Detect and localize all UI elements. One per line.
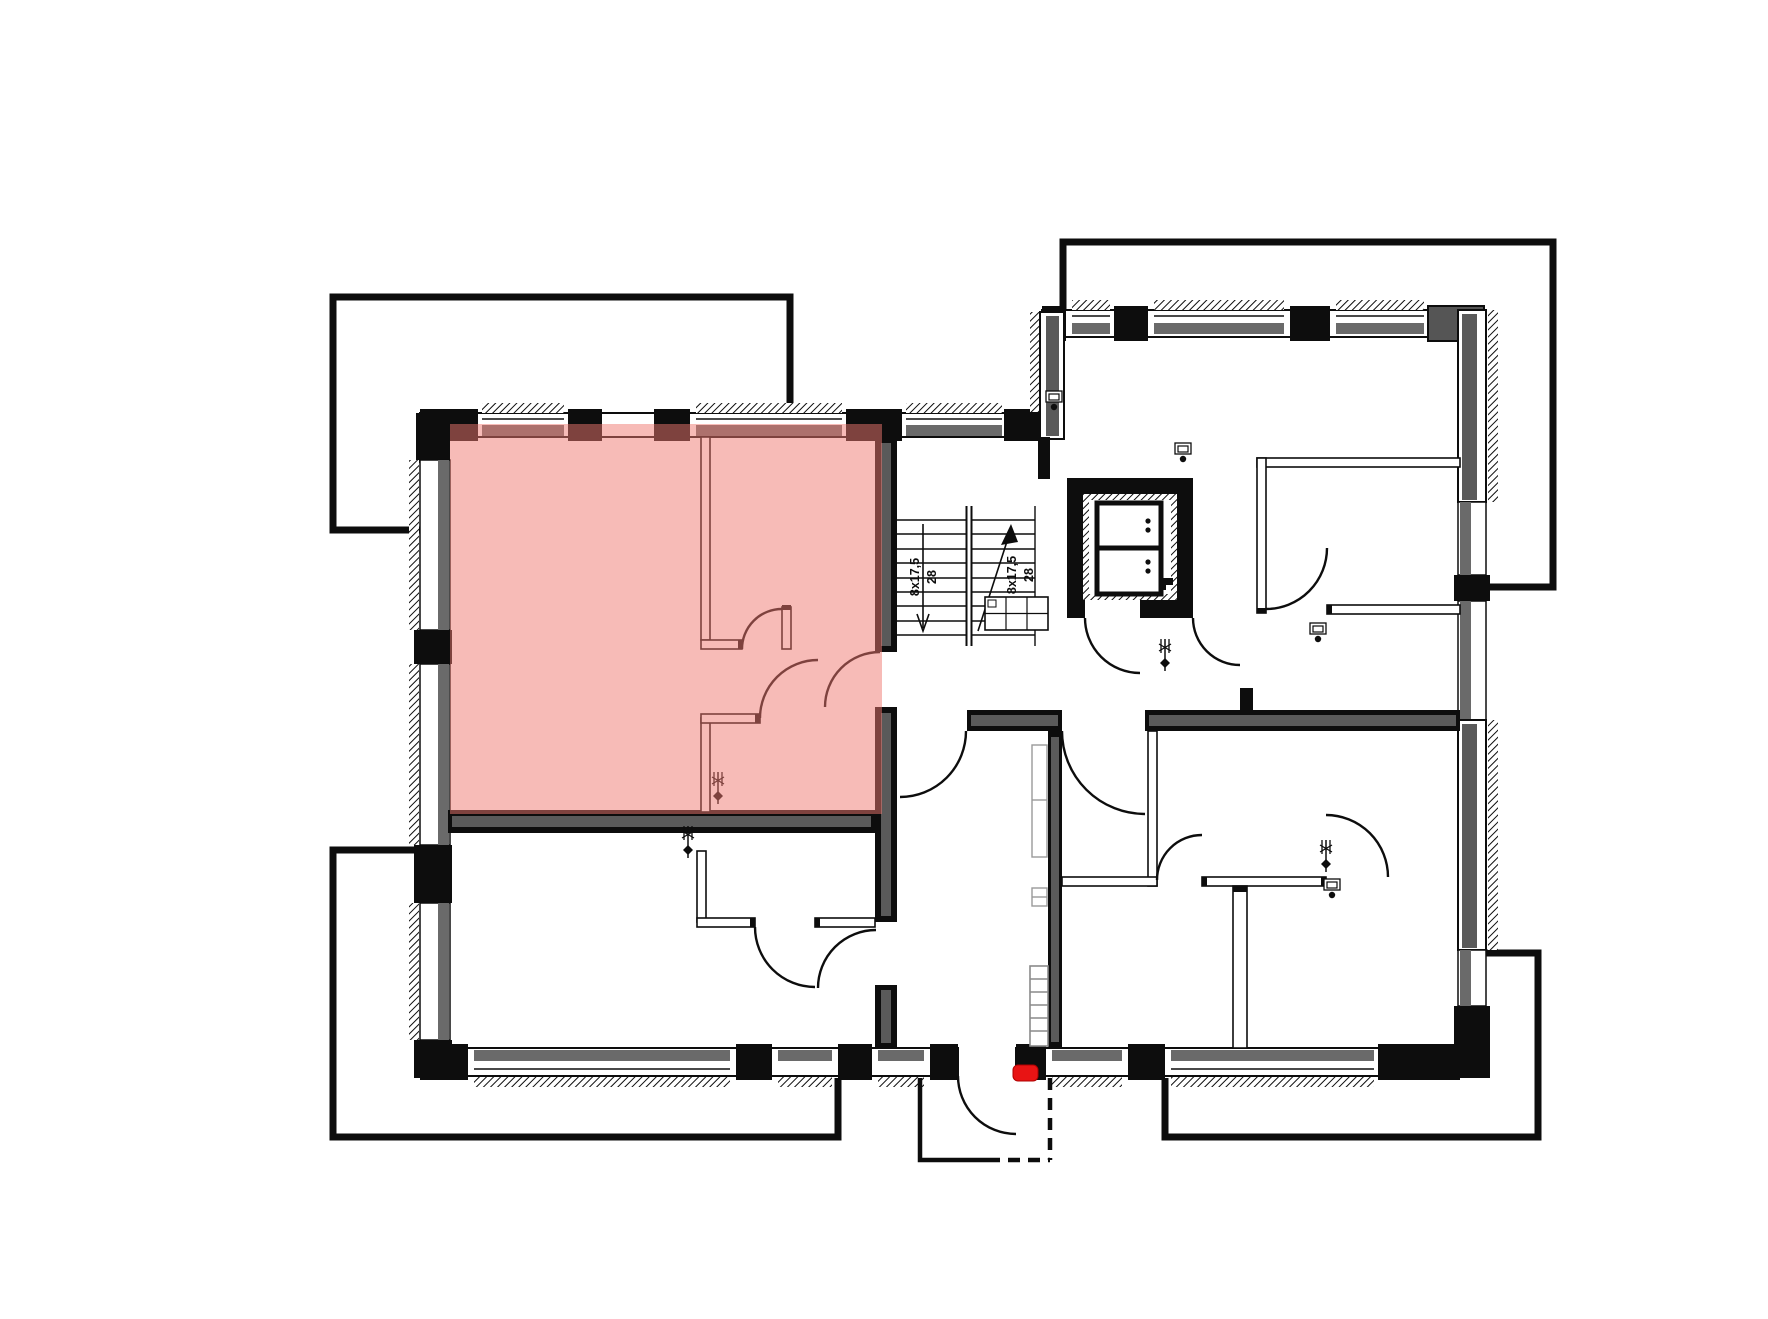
wardrobe (1032, 745, 1047, 906)
stair-label-right-riser: 8x17,5 (1005, 556, 1019, 594)
door-lowerleft-room (755, 927, 815, 987)
door-stop-icon (1175, 443, 1191, 462)
valve-icon (682, 826, 694, 858)
valve-icon (1159, 639, 1171, 671)
shelf-rack (1030, 966, 1048, 1046)
wall-top-right (1042, 300, 1484, 341)
wall-bottom (420, 1044, 1460, 1087)
door-upperright-entry (1193, 618, 1240, 665)
door-corridor (900, 731, 966, 797)
stair-label-left-riser: 8x17,5 (908, 558, 922, 596)
wall-right (1454, 310, 1498, 1078)
mailbox-grid (985, 597, 1048, 630)
wall-left (409, 413, 452, 1078)
entrance-marker[interactable] (1013, 1065, 1038, 1081)
door-lowerright-bath (1157, 835, 1202, 880)
door-stop-icon (1310, 623, 1326, 642)
entrance-porch (920, 1078, 1050, 1160)
elevator (1067, 478, 1193, 673)
terrace-bottom-left (333, 850, 838, 1137)
door-lowerright-entry (1062, 731, 1145, 814)
door-upperright-room (1266, 548, 1327, 609)
elevator-car-icon (1097, 503, 1173, 594)
door-building-entrance (958, 1076, 1016, 1134)
floor-plan-canvas: 8x17,5 28 8x17,5 28 (0, 0, 1768, 1319)
apartment-highlight[interactable] (450, 424, 882, 814)
door-lowerright-room (1326, 815, 1388, 877)
door-lowerleft-entry (818, 930, 876, 988)
valve-icon (1320, 840, 1332, 872)
stair-label-left-tread: 28 (925, 570, 939, 584)
stair-label-right-tread: 28 (1022, 568, 1036, 582)
door-stop-icon (1324, 879, 1340, 898)
